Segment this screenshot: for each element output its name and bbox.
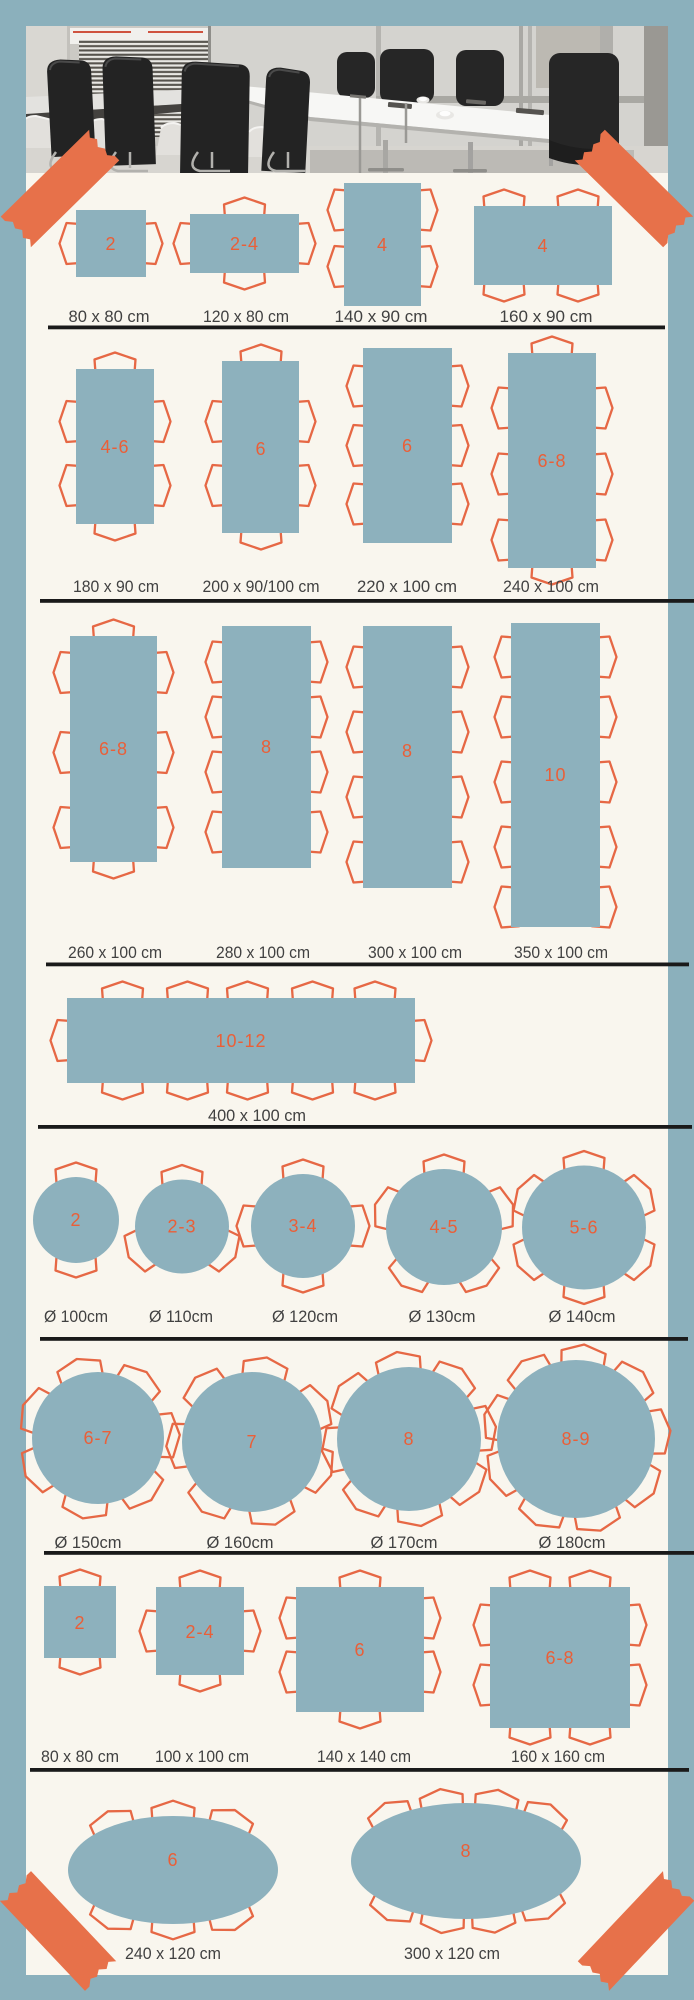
svg-text:300 x 100 cm: 300 x 100 cm [368, 944, 462, 962]
svg-text:8: 8 [403, 1429, 414, 1449]
svg-text:Ø 140cm: Ø 140cm [549, 1308, 616, 1326]
svg-text:260 x 100 cm: 260 x 100 cm [68, 944, 162, 962]
svg-text:10: 10 [544, 765, 566, 785]
svg-text:6-8: 6-8 [537, 451, 566, 471]
svg-text:6-8: 6-8 [99, 739, 128, 759]
svg-text:7: 7 [246, 1432, 257, 1452]
svg-text:Ø 150cm: Ø 150cm [55, 1534, 122, 1552]
svg-text:8: 8 [402, 741, 413, 761]
svg-text:6: 6 [402, 436, 413, 456]
svg-text:140 x 140 cm: 140 x 140 cm [317, 1748, 411, 1766]
svg-text:120 x 80 cm: 120 x 80 cm [203, 308, 289, 326]
svg-text:8: 8 [261, 737, 272, 757]
svg-text:6: 6 [167, 1850, 178, 1870]
svg-text:10-12: 10-12 [215, 1031, 266, 1051]
svg-text:Ø 160cm: Ø 160cm [207, 1534, 274, 1552]
svg-text:280 x 100 cm: 280 x 100 cm [216, 944, 310, 962]
svg-text:140 x 90 cm: 140 x 90 cm [335, 308, 428, 326]
svg-text:400 x 100 cm: 400 x 100 cm [208, 1107, 306, 1125]
svg-text:6: 6 [354, 1640, 365, 1660]
svg-text:80 x 80 cm: 80 x 80 cm [41, 1748, 119, 1766]
svg-text:350 x 100 cm: 350 x 100 cm [514, 944, 608, 962]
svg-text:2: 2 [70, 1210, 81, 1230]
svg-text:4: 4 [537, 236, 548, 256]
svg-text:6-8: 6-8 [545, 1648, 574, 1668]
svg-text:5-6: 5-6 [569, 1218, 598, 1238]
svg-text:300 x 120 cm: 300 x 120 cm [404, 1945, 500, 1963]
svg-text:80 x 80 cm: 80 x 80 cm [69, 308, 150, 326]
svg-text:240 x 100 cm: 240 x 100 cm [503, 578, 599, 596]
svg-text:2-4: 2-4 [230, 234, 259, 254]
svg-text:6-7: 6-7 [83, 1428, 112, 1448]
svg-text:6: 6 [255, 439, 266, 459]
svg-text:3-4: 3-4 [288, 1216, 317, 1236]
svg-text:Ø 180cm: Ø 180cm [539, 1534, 606, 1552]
svg-text:180 x 90 cm: 180 x 90 cm [73, 578, 159, 596]
svg-text:100 x 100 cm: 100 x 100 cm [155, 1748, 249, 1766]
svg-text:220 x 100 cm: 220 x 100 cm [357, 578, 457, 596]
svg-text:8-9: 8-9 [561, 1429, 590, 1449]
svg-text:2-3: 2-3 [167, 1217, 196, 1237]
svg-text:Ø 170cm: Ø 170cm [371, 1534, 438, 1552]
svg-text:240 x 120 cm: 240 x 120 cm [125, 1945, 221, 1963]
svg-text:8: 8 [460, 1841, 471, 1861]
svg-text:Ø 120cm: Ø 120cm [272, 1308, 338, 1326]
svg-text:160 x 90 cm: 160 x 90 cm [500, 308, 593, 326]
svg-text:2-4: 2-4 [185, 1622, 214, 1642]
svg-text:Ø 110cm: Ø 110cm [149, 1308, 213, 1326]
svg-text:Ø 130cm: Ø 130cm [409, 1308, 476, 1326]
svg-text:160 x 160 cm: 160 x 160 cm [511, 1748, 605, 1766]
svg-text:4: 4 [377, 235, 388, 255]
svg-text:4-5: 4-5 [429, 1217, 458, 1237]
svg-text:2: 2 [105, 234, 116, 254]
svg-text:Ø 100cm: Ø 100cm [44, 1308, 108, 1326]
svg-text:2: 2 [74, 1613, 85, 1633]
svg-text:4-6: 4-6 [100, 437, 129, 457]
svg-text:200 x 90/100 cm: 200 x 90/100 cm [203, 578, 320, 596]
